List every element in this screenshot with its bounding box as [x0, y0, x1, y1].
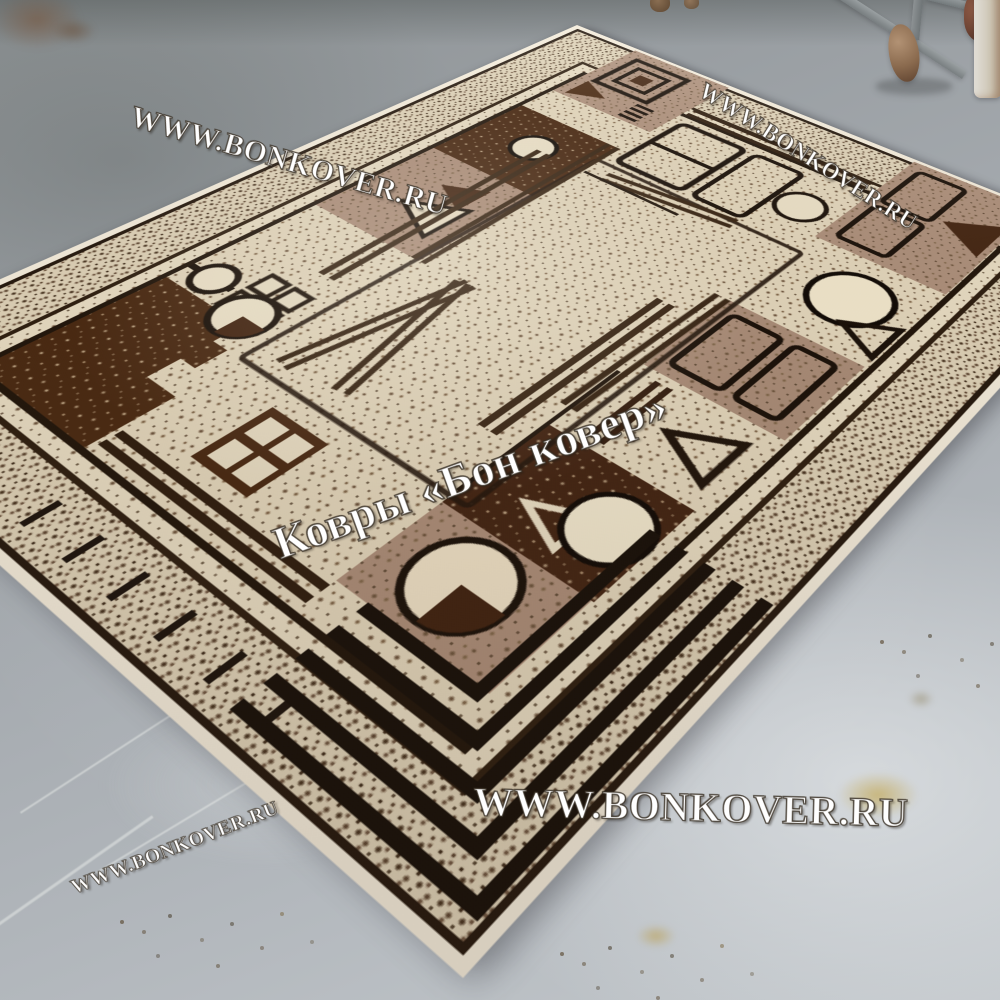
- floor-stain: [908, 690, 934, 708]
- photo-stage: WWW.BONKOVER.RU WWW.BONKOVER.RU Ковры «Б…: [0, 0, 1000, 1000]
- floor-debris-specks: [120, 920, 124, 924]
- floor-debris-specks: [560, 952, 564, 956]
- furniture-shadow: [876, 78, 952, 93]
- floor-yellow-stain: [636, 924, 676, 948]
- floor-debris-specks: [880, 640, 884, 644]
- furniture-white-pipe: [974, 0, 1000, 98]
- floor-rust-stain: [52, 18, 96, 44]
